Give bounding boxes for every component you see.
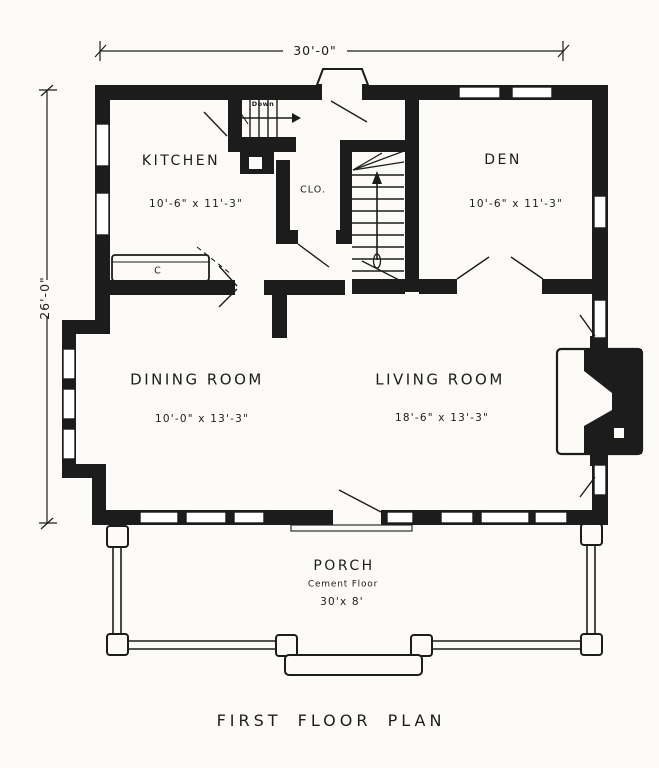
plan-caption: FIRST FLOOR PLAN [217, 713, 446, 729]
porch-label: PORCH [313, 559, 374, 573]
rear-vestibule [317, 69, 368, 85]
porch-posts [107, 524, 602, 656]
dining-room-size-label: 10'-0" x 13'-3" [155, 414, 249, 425]
fireplace [557, 349, 642, 454]
floor-plan-drawing [0, 0, 659, 768]
height-dimension-label: 26'-0" [39, 276, 52, 320]
front-steps [285, 655, 422, 675]
porch-size-label: 30'x 8' [320, 597, 364, 608]
floor-plan-canvas: 30'-0" 26'-0" KITCHEN 10'-6" x 11'-3" DE… [0, 0, 659, 768]
main-stairs [352, 151, 404, 271]
kitchen-label: KITCHEN [142, 154, 220, 168]
width-dimension-label: 30'-0" [293, 45, 337, 58]
dining-room-label: DINING ROOM [130, 373, 264, 388]
interior-walls [102, 85, 606, 466]
counter-label: C [154, 266, 162, 276]
stairs-down-label: Down [252, 101, 275, 108]
living-room-label: LIVING ROOM [375, 373, 505, 388]
exterior-walls [62, 85, 608, 525]
porch-floor-label: Cement Floor [308, 581, 378, 590]
kitchen-size-label: 10'-6" x 11'-3" [149, 199, 243, 210]
living-room-size-label: 18'-6" x 13'-3" [395, 413, 489, 424]
den-size-label: 10'-6" x 11'-3" [469, 199, 563, 210]
den-label: DEN [484, 153, 522, 167]
closet-label: CLO. [300, 185, 326, 195]
up-arrow-icon [372, 171, 382, 268]
